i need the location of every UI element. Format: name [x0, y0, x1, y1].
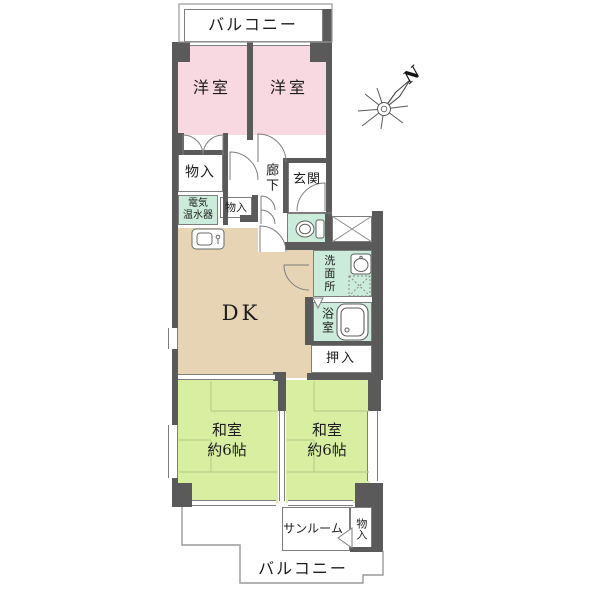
label-storage-bottom: 物入 — [354, 518, 368, 540]
label-storage-top: 物入 — [185, 164, 215, 182]
label-japanese-left-line1: 和室 — [212, 421, 242, 439]
label-sunroom: サンルーム — [283, 522, 343, 537]
label-balcony-bottom: バルコニー — [258, 559, 348, 579]
label-storage-mid: 物入 — [225, 201, 247, 215]
closet-door-arc-right — [203, 135, 223, 155]
label-corridor: 廊下 — [262, 163, 278, 193]
label-western-right: 洋室 — [270, 78, 308, 98]
label-closet: 押入 — [326, 351, 356, 367]
label-washroom: 洗面所 — [322, 255, 336, 294]
washing-machine-icon — [349, 276, 370, 296]
compass-icon: N — [358, 62, 426, 129]
label-japanese-left-line2: 約6帖 — [207, 441, 247, 459]
kitchen-sink-icon — [192, 229, 224, 249]
western-left-door-arc — [230, 152, 258, 180]
shaft-x-icon — [332, 216, 372, 242]
bifold-door-arcs — [261, 196, 275, 224]
label-bathroom: 浴室 — [320, 307, 335, 335]
label-japanese-right-line1: 和室 — [312, 421, 342, 439]
compass-north-label: N — [399, 62, 426, 89]
label-western-left: 洋室 — [193, 78, 231, 98]
bathtub-icon — [337, 304, 368, 340]
dk-washroom-door-arc — [284, 265, 309, 290]
label-water-heater-line2: 温水器 — [183, 210, 213, 221]
floor-plan: N バルコニー 洋室 洋室 物入 廊下 玄関 電気 温水器 物入 DK 洗面所 … — [0, 0, 600, 600]
toilet-icon — [296, 220, 324, 238]
western-right-door-arc — [258, 134, 286, 162]
label-japanese-left: 和室 約6帖 — [207, 420, 247, 461]
label-water-heater-line1: 電気 — [188, 198, 208, 209]
label-entrance: 玄関 — [293, 172, 321, 188]
label-balcony-top: バルコニー — [208, 15, 298, 35]
corridor-dk-door-arc — [260, 226, 286, 252]
washbasin-icon — [351, 254, 371, 274]
label-japanese-right: 和室 約6帖 — [307, 420, 347, 461]
label-japanese-right-line2: 約6帖 — [307, 441, 347, 459]
closet-door-arc-left — [183, 135, 203, 155]
label-water-heater: 電気 温水器 — [183, 198, 213, 222]
label-dk: DK — [222, 300, 261, 326]
